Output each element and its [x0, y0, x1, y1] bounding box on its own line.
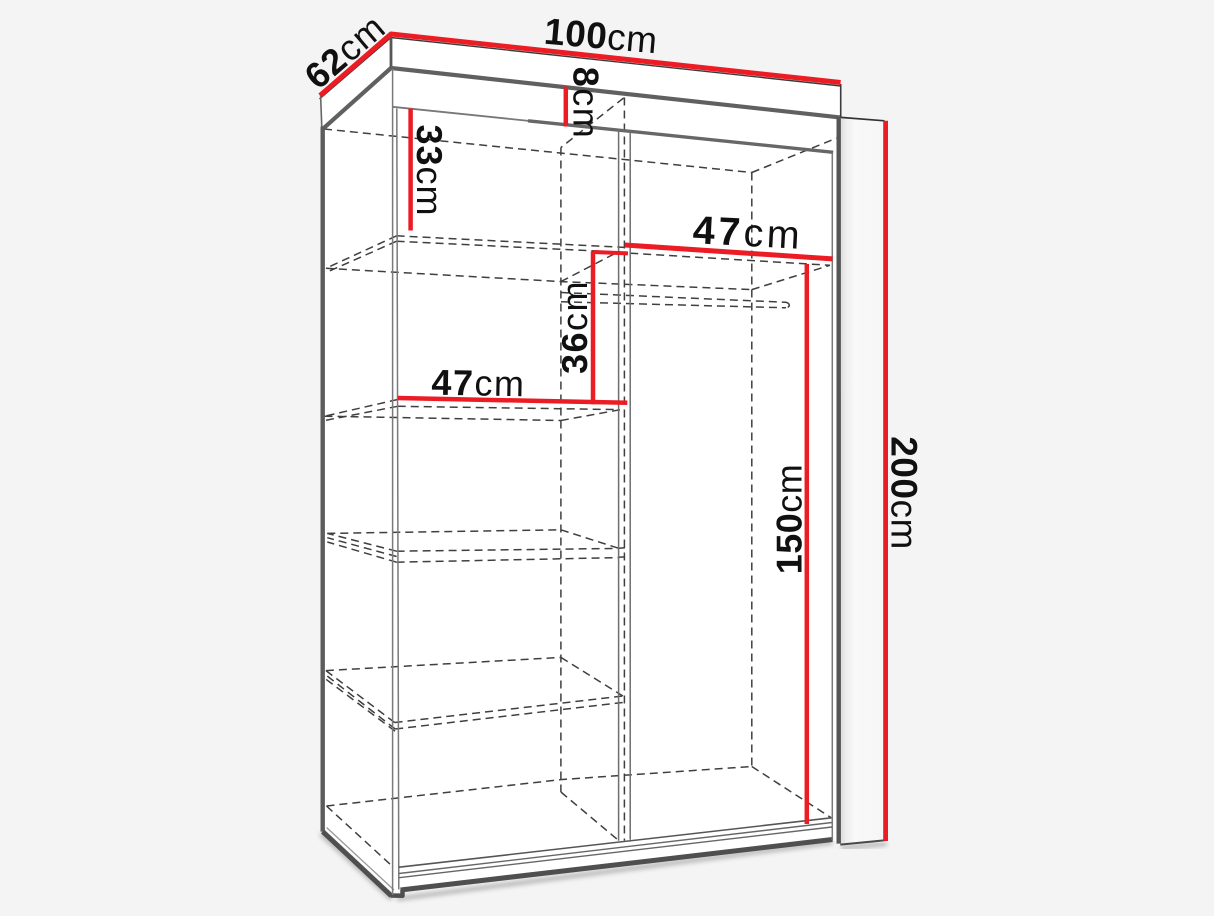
svg-text:47cm: 47cm [431, 361, 526, 404]
svg-text:150cm: 150cm [768, 464, 809, 575]
svg-text:8cm: 8cm [566, 67, 607, 140]
svg-text:200cm: 200cm [884, 436, 925, 550]
svg-text:47cm: 47cm [692, 208, 804, 258]
svg-text:33cm: 33cm [410, 124, 451, 216]
svg-text:36cm: 36cm [554, 280, 595, 374]
